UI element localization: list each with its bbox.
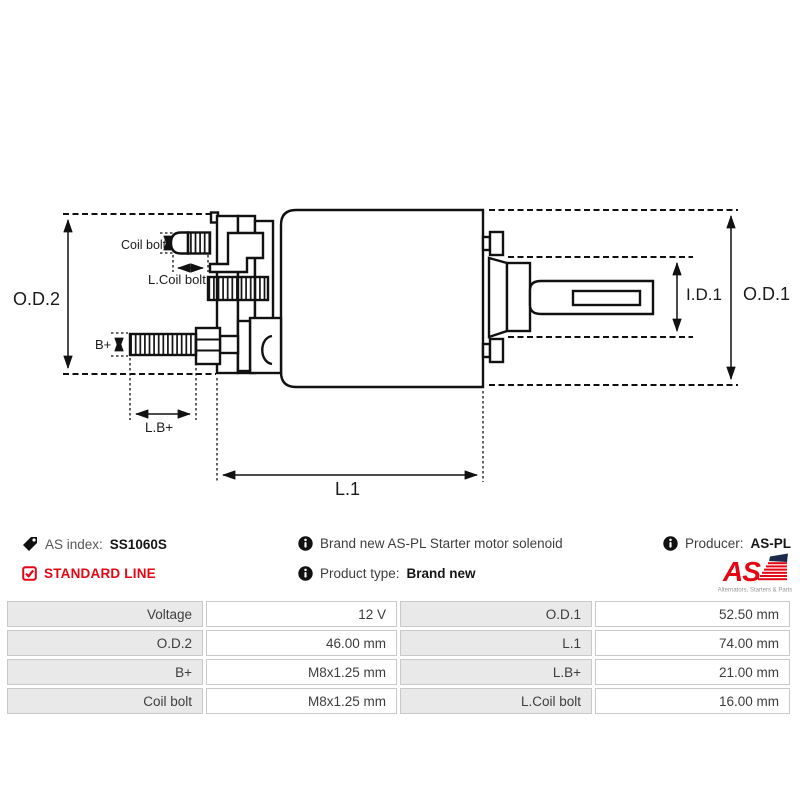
info-icon	[298, 536, 313, 551]
spec-label: Voltage	[7, 601, 203, 627]
spec-value: 52.50 mm	[595, 601, 790, 627]
spec-label: L.1	[400, 630, 592, 656]
coil-bolt	[171, 233, 210, 254]
dim-label-coil-bolt: Coil bolt	[121, 238, 167, 252]
plunger-shaft	[489, 258, 653, 337]
spec-label: O.D.1	[400, 601, 592, 627]
spec-label: Coil bolt	[7, 688, 203, 714]
as-index-row: AS index: SS1060S	[22, 536, 167, 552]
product-description: Brand new AS-PL Starter motor solenoid	[320, 536, 563, 551]
as-logo-tagline: Alternators, Starters & Parts	[718, 588, 792, 594]
checkbox-checked-icon	[22, 566, 37, 581]
dim-label-l1: L.1	[335, 479, 360, 499]
info-icon	[663, 536, 678, 551]
info-icon	[298, 566, 313, 581]
standard-line-row: STANDARD LINE	[22, 566, 156, 581]
dim-label-lb-plus: L.B+	[145, 420, 173, 435]
coil-terminal	[208, 277, 268, 300]
dim-label-id1: I.D.1	[686, 285, 722, 304]
spec-value: 12 V	[206, 601, 397, 627]
product-type-value: Brand new	[407, 566, 476, 581]
as-index-label: AS index:	[45, 537, 103, 552]
solenoid-body	[281, 210, 483, 387]
producer-label: Producer:	[685, 536, 744, 551]
spec-value: 16.00 mm	[595, 688, 790, 714]
solenoid-technical-drawing: O.D.2 O.D.1 I.D.1 Coil bolt L.Coil bolt …	[0, 0, 800, 520]
as-logo-flag	[769, 554, 788, 563]
spec-table: Voltage 12 V O.D.1 52.50 mm O.D.2 46.00 …	[7, 601, 790, 714]
spec-label: L.B+	[400, 659, 592, 685]
product-spec-page: { "colors": { "accent_red": "#e30613", "…	[0, 0, 800, 800]
dim-label-l-coil-bolt: L.Coil bolt	[148, 272, 206, 287]
product-type-row: Product type: Brand new	[298, 566, 476, 581]
producer-value: AS-PL	[751, 536, 792, 551]
b-plus-bolt	[130, 318, 281, 373]
tag-icon	[22, 536, 38, 552]
dim-label-od2: O.D.2	[13, 289, 60, 309]
as-logo-text: AS	[722, 556, 761, 587]
spec-label: L.Coil bolt	[400, 688, 592, 714]
as-logo-stripes	[758, 559, 787, 580]
spec-label: O.D.2	[7, 630, 203, 656]
spec-value: 21.00 mm	[595, 659, 790, 685]
spec-value: M8x1.25 mm	[206, 688, 397, 714]
producer-row: Producer: AS-PL	[663, 536, 791, 551]
standard-line-label: STANDARD LINE	[44, 566, 156, 581]
as-pl-logo: AS Alternators, Starters & Parts	[718, 553, 792, 600]
spec-value: M8x1.25 mm	[206, 659, 397, 685]
description-row: Brand new AS-PL Starter motor solenoid	[298, 536, 563, 551]
spec-value: 74.00 mm	[595, 630, 790, 656]
spec-label: B+	[7, 659, 203, 685]
as-index-value: SS1060S	[110, 537, 167, 552]
dim-label-b-plus: B+	[95, 337, 111, 352]
dim-label-od1: O.D.1	[743, 284, 790, 304]
product-type-label: Product type:	[320, 566, 400, 581]
spec-value: 46.00 mm	[206, 630, 397, 656]
